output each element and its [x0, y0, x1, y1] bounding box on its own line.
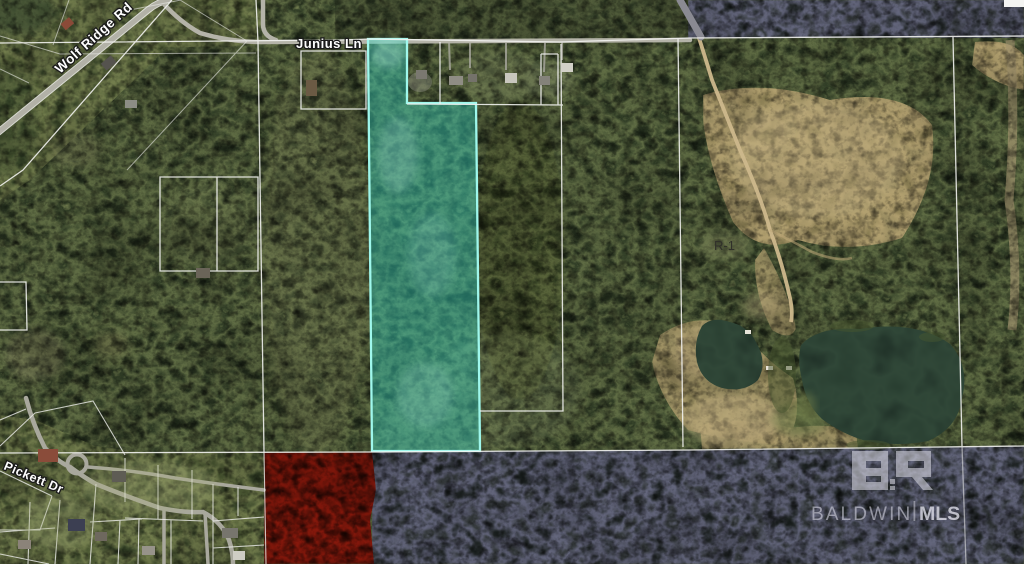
- svg-text:Junius Ln: Junius Ln: [296, 36, 362, 51]
- svg-text:MLS: MLS: [919, 503, 960, 525]
- svg-text:BALDWIN: BALDWIN: [811, 504, 912, 525]
- svg-text:R-1: R-1: [714, 238, 735, 253]
